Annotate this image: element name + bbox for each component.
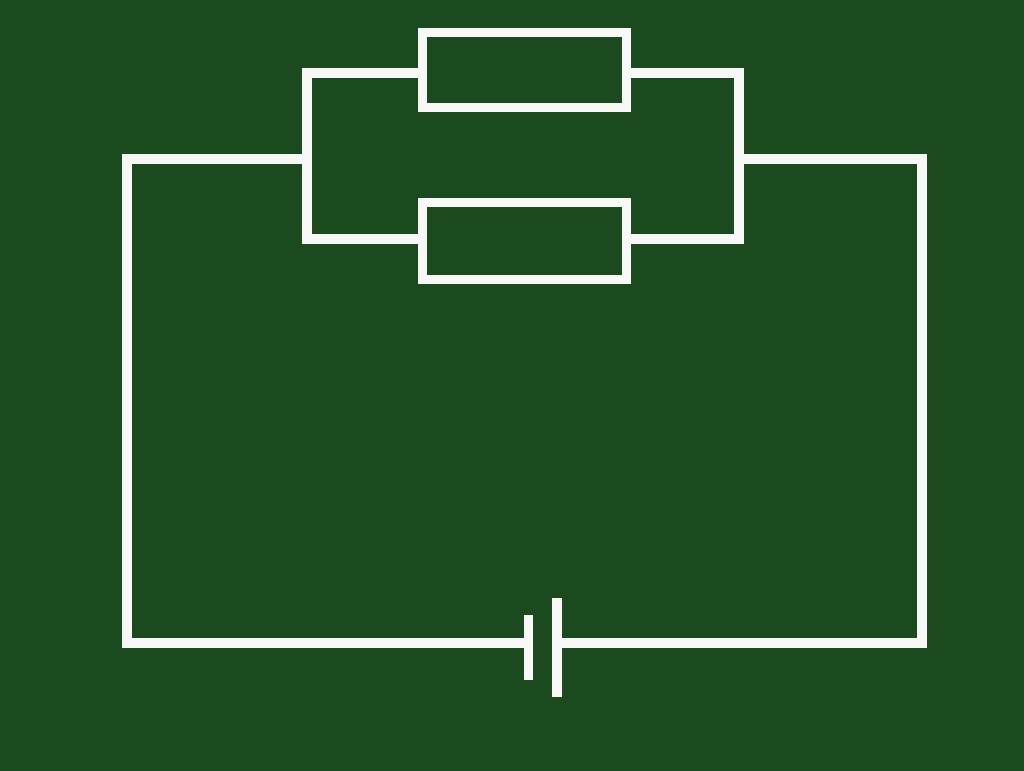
wire-top-right [734, 154, 927, 164]
battery-plate-long [552, 598, 562, 697]
wire-top-left [122, 154, 312, 164]
wire-parallel-right-vertical [734, 68, 744, 244]
battery-plate-short [524, 615, 533, 680]
wire-branch-top-left [302, 68, 418, 78]
wire-bottom-right [562, 638, 927, 648]
resistor-top [418, 28, 631, 112]
circuit-diagram-canvas [0, 0, 1024, 771]
wire-left-vertical [122, 154, 132, 648]
wire-branch-bottom-left [302, 234, 418, 244]
wire-branch-bottom-right [631, 234, 734, 244]
wire-parallel-left-vertical [302, 68, 312, 244]
resistor-bottom [418, 198, 631, 284]
wire-branch-top-right [631, 68, 734, 78]
wire-bottom-left [122, 638, 524, 648]
wire-right-vertical [917, 154, 927, 648]
